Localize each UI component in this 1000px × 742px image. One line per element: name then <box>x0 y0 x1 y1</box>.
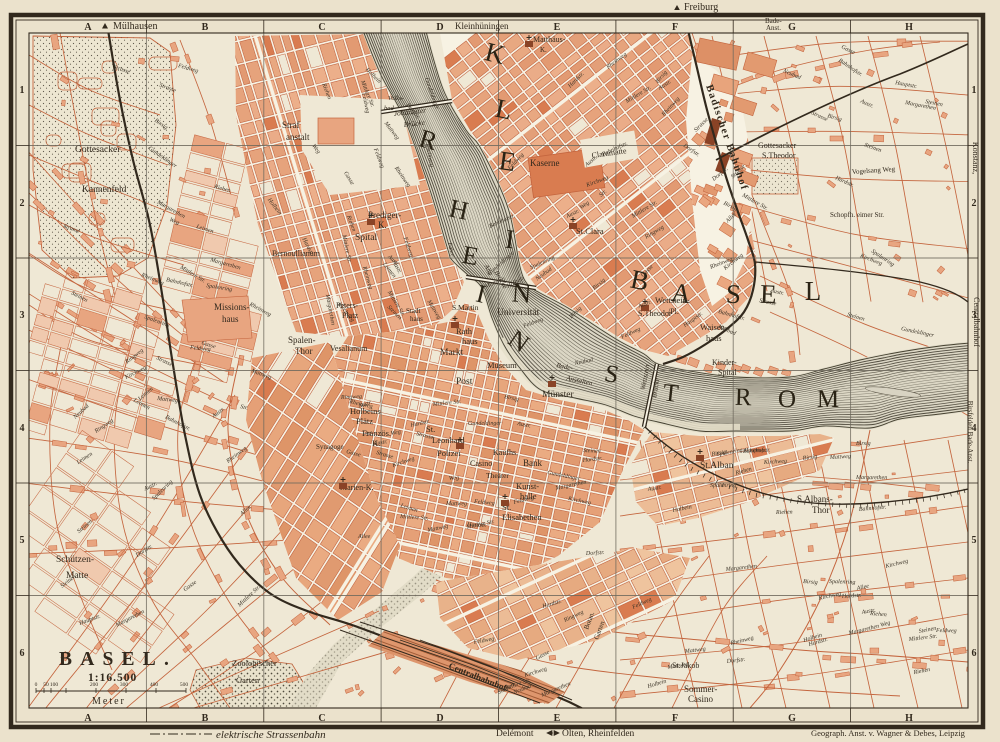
svg-text:G: G <box>788 22 796 33</box>
svg-text:Schopfh. eimer Str.: Schopfh. eimer Str. <box>830 211 884 219</box>
svg-text:Vesalianum: Vesalianum <box>330 344 368 353</box>
svg-text:H: H <box>905 713 913 724</box>
svg-text:Kaserne: Kaserne <box>530 158 559 168</box>
svg-text:haus: haus <box>462 336 478 346</box>
svg-text:Anst.: Anst. <box>766 24 781 32</box>
svg-text:E: E <box>554 713 561 724</box>
svg-text:A: A <box>84 22 92 33</box>
svg-text:500: 500 <box>180 682 189 688</box>
svg-text:BASEL.: BASEL. <box>59 649 177 670</box>
svg-text:Kinder-: Kinder- <box>712 358 737 367</box>
svg-text:Synagoge: Synagoge <box>316 443 344 451</box>
svg-text:Feldweg: Feldweg <box>935 628 957 634</box>
svg-text:haus: haus <box>222 314 239 324</box>
svg-text:Missions-: Missions- <box>214 302 250 312</box>
svg-text:L: L <box>805 276 822 306</box>
svg-text:K.: K. <box>540 46 547 54</box>
svg-text:Spalenring: Spalenring <box>829 579 856 586</box>
svg-text:Bank: Bank <box>523 458 542 468</box>
svg-text:Casino: Casino <box>470 459 492 468</box>
svg-text:H: H <box>905 22 913 33</box>
svg-text:S: S <box>725 279 742 310</box>
svg-text:Polizei: Polizei <box>437 448 461 458</box>
svg-text:Gottesacker: Gottesacker <box>758 141 797 150</box>
svg-text:Museum: Museum <box>487 360 517 370</box>
svg-text:S.Theodor: S.Theodor <box>762 151 796 160</box>
svg-text:haus: haus <box>706 333 722 343</box>
svg-text:D: D <box>436 713 443 724</box>
svg-text:Schützen-: Schützen- <box>56 555 94 565</box>
svg-text:F: F <box>672 22 678 33</box>
svg-text:M: M <box>817 386 839 413</box>
svg-text:Universität: Universität <box>497 308 540 318</box>
svg-text:K.: K. <box>378 220 387 230</box>
svg-text:Münster: Münster <box>542 390 575 400</box>
svg-text:Konstanz,: Konstanz, <box>971 142 980 174</box>
svg-text:Birsig: Birsig <box>803 579 818 586</box>
svg-text:Matthäus-: Matthäus- <box>533 35 566 44</box>
svg-text:S.Martin: S.Martin <box>452 303 479 312</box>
svg-text:anstalt: anstalt <box>286 132 310 142</box>
svg-text:Hardstr.: Hardstr. <box>466 522 487 529</box>
svg-text:Spital: Spital <box>718 368 737 377</box>
svg-text:Zoologischer: Zoologischer <box>232 658 277 668</box>
svg-text:A: A <box>84 713 92 724</box>
svg-text:300: 300 <box>120 682 129 688</box>
svg-text:Sommer-: Sommer- <box>684 684 717 694</box>
svg-text:Kannenfeld: Kannenfeld <box>82 184 127 195</box>
svg-text:Spalen-: Spalen- <box>288 335 316 345</box>
svg-text:Kaufhs.: Kaufhs. <box>493 448 518 457</box>
svg-text:6: 6 <box>972 648 977 659</box>
svg-text:Dorfstr.: Dorfstr. <box>585 549 605 557</box>
svg-text:4: 4 <box>20 423 25 434</box>
svg-text:D: D <box>436 22 443 33</box>
svg-text:0: 0 <box>35 682 38 688</box>
svg-text:elektrische Strassenbahn: elektrische Strassenbahn <box>216 729 326 741</box>
svg-text:Delémont: Delémont <box>496 729 534 739</box>
svg-text:Mülhausen: Mülhausen <box>113 21 157 32</box>
svg-text:Weg: Weg <box>449 475 460 482</box>
svg-text:3: 3 <box>20 310 25 321</box>
svg-text:T: T <box>662 379 680 407</box>
svg-text:Birsfelden Bade-Anst.: Birsfelden Bade-Anst. <box>966 401 974 464</box>
svg-text:Elisabethen: Elisabethen <box>502 512 542 522</box>
svg-text:2: 2 <box>972 198 977 209</box>
svg-text:50: 50 <box>43 682 49 688</box>
svg-text:Freiburg: Freiburg <box>684 2 718 13</box>
svg-text:Steinen: Steinen <box>583 448 601 455</box>
svg-text:1: 1 <box>972 85 977 96</box>
svg-text:B: B <box>202 22 209 33</box>
svg-text:5: 5 <box>972 535 977 546</box>
svg-text:Allee: Allee <box>357 534 371 540</box>
svg-text:Meter: Meter <box>92 696 126 707</box>
svg-text:Markt: Markt <box>440 348 464 358</box>
svg-text:C: C <box>318 713 325 724</box>
svg-text:B: B <box>202 713 209 724</box>
svg-text:St.: St. <box>426 424 435 434</box>
svg-text:200: 200 <box>90 682 99 688</box>
svg-text:Centralbahnhof: Centralbahnhof <box>972 297 981 347</box>
svg-text:Olten, Rheinfelden: Olten, Rheinfelden <box>562 728 635 739</box>
svg-text:Margarethen: Margarethen <box>855 475 887 481</box>
svg-text:6: 6 <box>20 648 25 659</box>
svg-text:Spalenring: Spalenring <box>710 483 736 489</box>
svg-text:Gottesacker: Gottesacker <box>75 145 121 155</box>
svg-text:O: O <box>778 386 796 413</box>
svg-text:S.Albans-: S.Albans- <box>797 494 833 504</box>
svg-text:Thor: Thor <box>295 346 313 356</box>
svg-text:Casino: Casino <box>688 694 714 704</box>
svg-text:Post: Post <box>456 377 473 387</box>
svg-text:1: 1 <box>20 85 25 96</box>
svg-text:Spital: Spital <box>355 233 378 243</box>
svg-text:Birsig: Birsig <box>856 441 871 447</box>
svg-text:St.Clara: St.Clara <box>576 226 604 236</box>
svg-text:haus: haus <box>410 315 423 323</box>
svg-text:Riehen: Riehen <box>775 509 793 516</box>
svg-text:St.Alban: St.Alban <box>700 461 734 471</box>
svg-text:5: 5 <box>20 535 25 546</box>
svg-text:Garten: Garten <box>236 675 260 685</box>
svg-text:Theater: Theater <box>486 471 509 480</box>
svg-text:Volks-: Volks- <box>388 95 404 102</box>
svg-text:Straf: Straf <box>282 120 300 130</box>
svg-text:Stadt: Stadt <box>406 307 420 315</box>
svg-text:Kleinhüningen: Kleinhüningen <box>455 21 509 31</box>
svg-text:400: 400 <box>150 682 159 688</box>
svg-text:2: 2 <box>20 198 25 209</box>
svg-text:Plätz: Plätz <box>356 416 373 426</box>
svg-text:R: R <box>734 384 752 412</box>
svg-text:Geograph. Anst. v. Wagner & De: Geograph. Anst. v. Wagner & Debes, Leipz… <box>811 728 966 738</box>
svg-text:G: G <box>788 713 796 724</box>
svg-text:Wettstein-: Wettstein- <box>655 295 690 305</box>
svg-text:100: 100 <box>50 682 59 688</box>
svg-text:Mattweg: Mattweg <box>445 501 467 507</box>
svg-text:Kunst-: Kunst- <box>516 481 539 491</box>
svg-text:C: C <box>318 22 325 33</box>
svg-text:E: E <box>554 22 561 33</box>
svg-text:Gundeldinger: Gundeldinger <box>468 421 502 427</box>
svg-text:Thor: Thor <box>812 505 830 515</box>
svg-text:F: F <box>672 713 678 724</box>
